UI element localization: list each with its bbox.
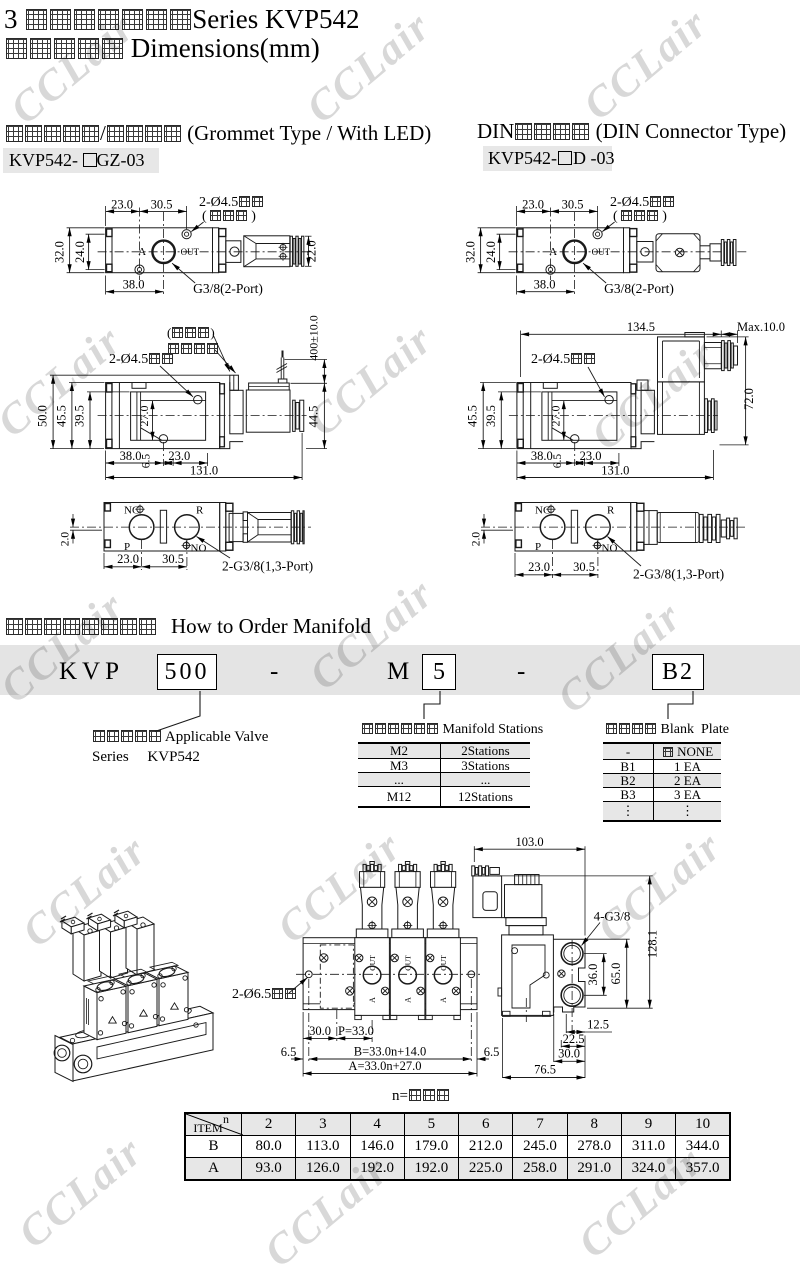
svg-text:2-G3/8(1,3-Port): 2-G3/8(1,3-Port) xyxy=(222,559,313,574)
svg-text:23.0: 23.0 xyxy=(111,197,133,211)
svg-text:131.0: 131.0 xyxy=(601,463,629,477)
svg-text:R: R xyxy=(607,505,615,517)
svg-text:30.5: 30.5 xyxy=(151,197,173,211)
svg-text:2.0: 2.0 xyxy=(471,532,483,547)
svg-text:6.5: 6.5 xyxy=(552,454,564,469)
svg-text:24.0: 24.0 xyxy=(73,241,87,263)
svg-text:OUT: OUT xyxy=(368,955,377,971)
svg-text:32.0: 32.0 xyxy=(464,241,478,263)
svg-text:Max.10.0: Max.10.0 xyxy=(737,320,785,334)
svg-text:NO: NO xyxy=(602,543,618,555)
svg-text:128.1: 128.1 xyxy=(645,930,659,958)
svg-text:OUT: OUT xyxy=(439,955,448,971)
svg-text:A=33.0n+27.0: A=33.0n+27.0 xyxy=(348,1059,421,1073)
svg-text:27.0: 27.0 xyxy=(548,406,562,427)
svg-text:6.5: 6.5 xyxy=(484,1045,500,1059)
svg-text:38.0: 38.0 xyxy=(120,449,142,463)
svg-text:6.5: 6.5 xyxy=(281,1045,297,1059)
svg-text:A: A xyxy=(404,997,413,1003)
svg-text:38.0: 38.0 xyxy=(123,278,145,292)
svg-text:P: P xyxy=(535,541,541,553)
svg-text:72.0: 72.0 xyxy=(742,388,756,410)
svg-text:2.0: 2.0 xyxy=(60,532,72,547)
svg-text:103.0: 103.0 xyxy=(515,835,543,849)
svg-text:23.0: 23.0 xyxy=(522,197,544,211)
svg-text:30.5: 30.5 xyxy=(573,560,595,574)
svg-text:131.0: 131.0 xyxy=(190,463,218,477)
svg-text:23.0: 23.0 xyxy=(168,449,190,463)
svg-text:23.0: 23.0 xyxy=(117,552,139,566)
svg-text:2-G3/8(1,3-Port): 2-G3/8(1,3-Port) xyxy=(633,567,724,582)
svg-text:24.0: 24.0 xyxy=(484,241,498,263)
svg-text:G3/8(2-Port): G3/8(2-Port) xyxy=(604,281,674,296)
svg-text:P=33.0: P=33.0 xyxy=(338,1024,374,1038)
svg-text:400±10.0: 400±10.0 xyxy=(307,315,321,361)
svg-text:4-G3/8: 4-G3/8 xyxy=(594,909,631,924)
svg-text:R: R xyxy=(196,505,204,517)
svg-text:22.0: 22.0 xyxy=(305,240,319,262)
svg-text:NO: NO xyxy=(191,543,207,555)
svg-text:30.0: 30.0 xyxy=(309,1024,331,1038)
svg-text:30.5: 30.5 xyxy=(562,197,584,211)
svg-text:G3/8(2-Port): G3/8(2-Port) xyxy=(193,281,263,296)
svg-text:A: A xyxy=(439,997,448,1003)
svg-text:23.0: 23.0 xyxy=(580,449,602,463)
svg-text:38.0: 38.0 xyxy=(531,449,553,463)
svg-text:134.5: 134.5 xyxy=(627,320,655,334)
svg-text:38.0: 38.0 xyxy=(534,278,556,292)
svg-text:44.5: 44.5 xyxy=(307,406,321,428)
svg-text:6.5: 6.5 xyxy=(141,454,153,469)
svg-text:27.0: 27.0 xyxy=(137,406,151,427)
svg-text:12.5: 12.5 xyxy=(587,1018,609,1032)
svg-text:OUT: OUT xyxy=(404,955,413,971)
svg-text:B=33.0n+14.0: B=33.0n+14.0 xyxy=(354,1045,426,1059)
svg-text:39.5: 39.5 xyxy=(73,405,87,427)
svg-text:45.5: 45.5 xyxy=(55,405,69,427)
svg-text:45.5: 45.5 xyxy=(466,405,480,427)
svg-text:22.5: 22.5 xyxy=(563,1032,585,1046)
svg-text:30.5: 30.5 xyxy=(162,552,184,566)
svg-text:65.0: 65.0 xyxy=(609,963,623,985)
svg-text:23.0: 23.0 xyxy=(528,560,550,574)
svg-text:76.5: 76.5 xyxy=(534,1063,556,1077)
svg-text:A: A xyxy=(368,997,377,1003)
svg-text:30.0: 30.0 xyxy=(558,1047,580,1061)
svg-text:50.0: 50.0 xyxy=(36,405,50,427)
svg-text:36.0: 36.0 xyxy=(586,964,600,986)
svg-text:39.5: 39.5 xyxy=(484,405,498,427)
svg-text:32.0: 32.0 xyxy=(53,241,67,263)
